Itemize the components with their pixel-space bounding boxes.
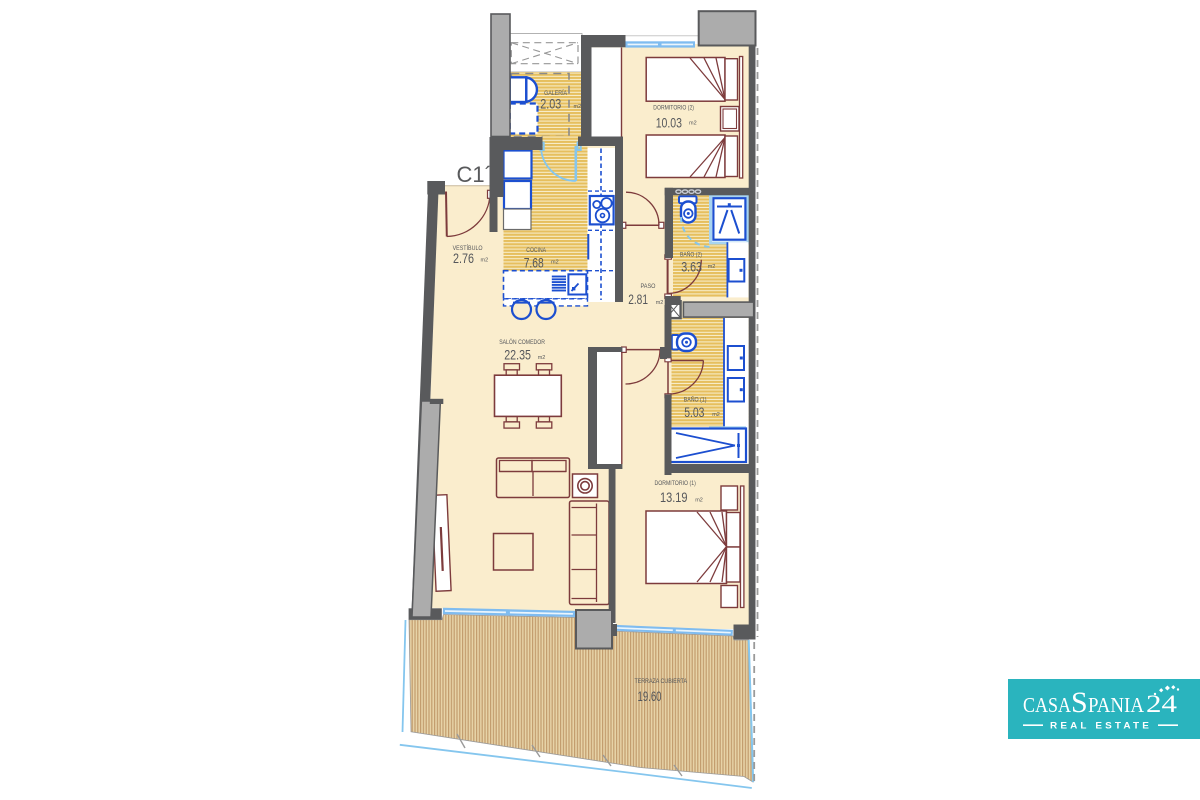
svg-text:BAÑO (1): BAÑO (1) <box>684 395 707 404</box>
svg-text:2.03: 2.03 <box>540 96 561 111</box>
svg-text:5.03: 5.03 <box>684 405 704 420</box>
svg-text:m2: m2 <box>695 498 703 504</box>
svg-text:m2: m2 <box>712 412 720 418</box>
svg-text:m2: m2 <box>551 259 559 265</box>
svg-text:7.68: 7.68 <box>524 255 544 270</box>
svg-text:m2: m2 <box>656 300 664 306</box>
svg-text:10.03: 10.03 <box>656 116 682 131</box>
svg-text:REAL ESTATE: REAL ESTATE <box>1050 721 1152 732</box>
svg-text:DORMITORIO (1): DORMITORIO (1) <box>655 480 696 487</box>
svg-text:DORMITORIO (2): DORMITORIO (2) <box>653 105 694 112</box>
svg-text:TERRAZA CUBIERTA: TERRAZA CUBIERTA <box>635 678 688 685</box>
svg-text:PANIA: PANIA <box>1088 693 1144 717</box>
svg-text:2.81: 2.81 <box>628 292 648 307</box>
svg-text:m2: m2 <box>689 120 697 126</box>
svg-text:S: S <box>1071 686 1088 719</box>
svg-text:COCINA: COCINA <box>526 247 546 254</box>
svg-text:2.76: 2.76 <box>453 251 474 266</box>
svg-text:22.35: 22.35 <box>504 348 531 363</box>
svg-text:PASO: PASO <box>641 283 656 290</box>
svg-text:C1´: C1´ <box>457 162 492 187</box>
svg-text:SALÓN COMEDOR: SALÓN COMEDOR <box>499 337 545 346</box>
svg-text:CASA: CASA <box>1023 693 1071 717</box>
svg-text:m2: m2 <box>708 264 716 270</box>
svg-text:3.63: 3.63 <box>681 260 702 275</box>
svg-text:m2: m2 <box>574 104 582 110</box>
svg-text:13.19: 13.19 <box>660 490 688 505</box>
svg-text:BAÑO (2): BAÑO (2) <box>680 250 702 259</box>
svg-text:19.60: 19.60 <box>638 689 662 704</box>
svg-text:m2: m2 <box>538 355 546 361</box>
svg-text:24: 24 <box>1146 691 1178 718</box>
svg-text:m2: m2 <box>481 258 489 264</box>
